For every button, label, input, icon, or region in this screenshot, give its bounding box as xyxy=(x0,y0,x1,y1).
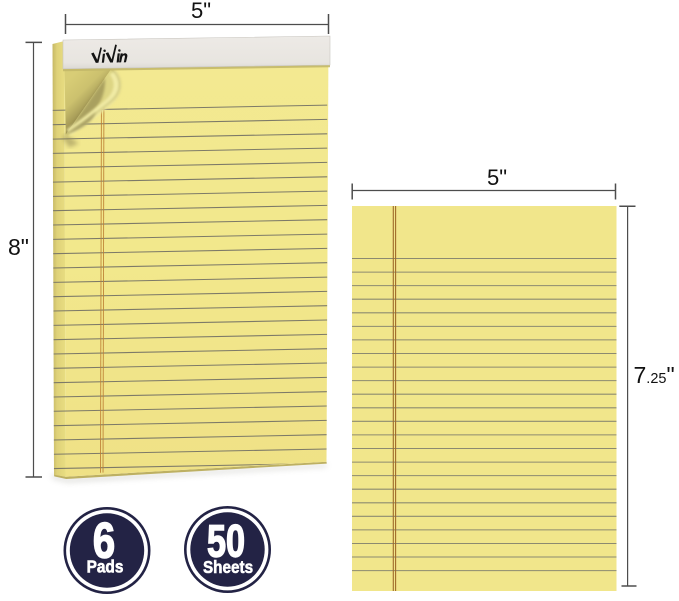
svg-text:Pads: Pads xyxy=(87,558,124,577)
svg-text:7.25": 7.25" xyxy=(634,362,675,388)
svg-text:5": 5" xyxy=(487,165,507,190)
svg-text:Sheets: Sheets xyxy=(203,557,253,577)
svg-text:5": 5" xyxy=(191,0,211,23)
svg-text:8": 8" xyxy=(8,234,29,260)
